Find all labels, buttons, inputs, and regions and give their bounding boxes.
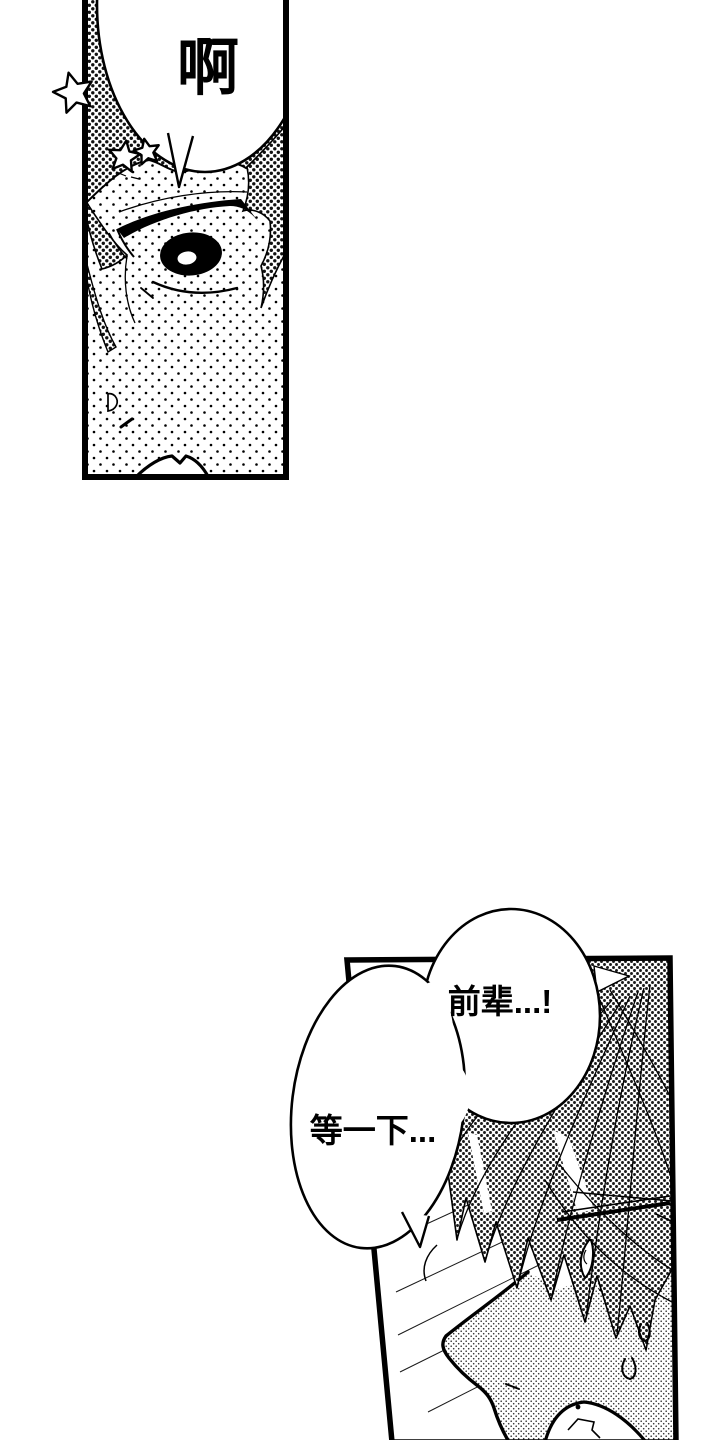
nostril-dot [576,1405,581,1410]
speech-text-wait: 等一下... [310,1112,437,1149]
panel-bottom: 前辈...! 等一下... [275,909,676,1440]
speech-text-senpai: 前辈...! [448,983,553,1020]
speech-text-ah: 啊 [177,34,239,103]
manga-page: 啊 [0,0,720,1440]
panel-top: 啊 [49,0,313,480]
manga-page-svg: 啊 [0,0,720,1440]
